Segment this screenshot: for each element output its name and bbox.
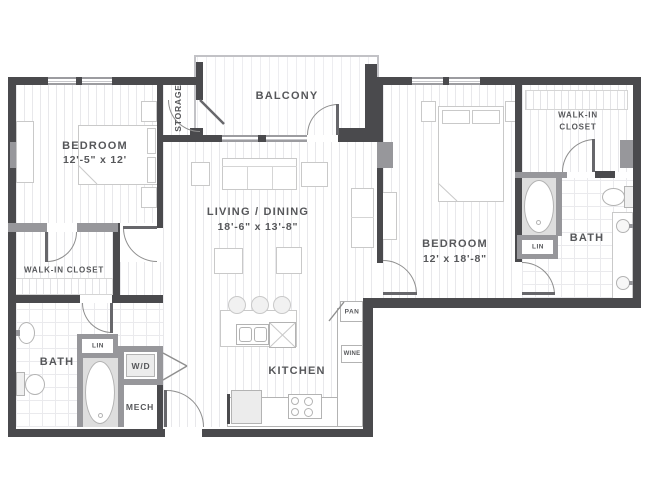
wall xyxy=(363,298,373,437)
dishwasher xyxy=(269,322,296,348)
wall xyxy=(363,298,641,308)
walkin-right-label-line1: WALK-IN xyxy=(558,111,598,120)
armchair xyxy=(276,247,302,274)
sink-basin xyxy=(254,327,267,342)
living-label: LIVING / DINING xyxy=(207,206,309,218)
bar-stool xyxy=(251,296,269,314)
side-chair xyxy=(191,162,210,186)
bedroom2-label: BEDROOM xyxy=(422,238,488,250)
closet-built-in xyxy=(620,140,633,168)
bedroom2-door-leaf xyxy=(383,292,417,295)
wall xyxy=(196,62,203,100)
pantry-label: PAN xyxy=(345,309,360,316)
sofa-back-line xyxy=(222,166,297,167)
bath-right-door-leaf xyxy=(522,292,555,295)
wall xyxy=(202,429,373,437)
bath-sink xyxy=(616,219,630,233)
balcony-label: BALCONY xyxy=(256,90,319,102)
partition-wall xyxy=(556,178,562,236)
sofa xyxy=(222,158,297,190)
sink-tap xyxy=(16,330,20,336)
wall xyxy=(113,223,120,303)
floor-plan: BEDROOM 12'-5" x 12' LIVING / DINING 18'… xyxy=(0,0,650,490)
console-divider xyxy=(351,217,374,218)
living-dims: 18'-6" x 13'-8" xyxy=(218,221,299,233)
mech-label: MECH xyxy=(126,402,154,412)
sink-basin xyxy=(239,327,252,342)
refrigerator xyxy=(231,390,262,424)
window-mullion xyxy=(258,135,266,142)
closet-shelf xyxy=(525,90,628,110)
sofa-cushion-line xyxy=(247,167,248,189)
bedroom1-label: BEDROOM xyxy=(62,140,128,152)
pillow xyxy=(472,110,500,124)
toilet-bowl xyxy=(602,188,625,206)
walkin-right-door-leaf xyxy=(592,139,595,172)
bedroom1-door-leaf xyxy=(123,226,157,229)
nightstand xyxy=(141,101,157,122)
burner xyxy=(291,408,299,416)
bar-stool xyxy=(273,296,291,314)
pillow xyxy=(442,110,470,124)
bedroom1-dims: 12'-5" x 12' xyxy=(63,154,127,166)
wall xyxy=(377,168,383,263)
nightstand xyxy=(421,101,436,122)
bedroom2-dims: 12' x 18'-8" xyxy=(423,253,487,265)
linen-left-label: LIN xyxy=(92,343,104,350)
wall xyxy=(633,77,641,308)
bath-sink xyxy=(616,276,630,290)
side-chair xyxy=(301,162,328,187)
pillow xyxy=(147,128,156,154)
sofa-cushion-line xyxy=(272,167,273,189)
linen-right-label: LIN xyxy=(532,244,544,251)
nightstand xyxy=(141,187,157,208)
wall xyxy=(8,295,80,303)
wall xyxy=(163,135,222,142)
wall xyxy=(374,77,412,85)
armchair xyxy=(214,248,243,274)
wall xyxy=(8,429,165,437)
walkin-left-label: WALK-IN CLOSET xyxy=(24,266,104,275)
washer-dryer-label: W/D xyxy=(132,361,151,371)
burner xyxy=(304,408,313,417)
tub-drain xyxy=(98,413,103,418)
toilet-tank xyxy=(16,372,25,396)
entry-door-leaf xyxy=(164,390,167,427)
partition-wall xyxy=(157,346,163,385)
wall xyxy=(8,77,16,437)
walkin-left-door-leaf xyxy=(45,232,48,262)
wall xyxy=(480,77,633,85)
wall xyxy=(595,171,615,178)
bath-left-label: BATH xyxy=(40,356,75,368)
closet-shelf xyxy=(14,278,113,295)
partition-wall xyxy=(118,346,124,427)
dresser xyxy=(381,192,397,240)
counter-end-wall xyxy=(227,394,230,424)
walkin-right-label-line2: CLOSET xyxy=(559,123,596,132)
partition-wall xyxy=(8,223,47,232)
wall xyxy=(374,85,383,142)
window-mullion xyxy=(443,77,449,85)
bedroom1-door-arc xyxy=(123,228,157,262)
bathtub xyxy=(524,180,554,233)
wall xyxy=(157,385,163,429)
bath-right-label: BATH xyxy=(570,232,605,244)
partition-wall xyxy=(77,223,118,232)
burner xyxy=(304,397,313,406)
bath-left-door-leaf xyxy=(110,303,113,333)
kitchen-label: KITCHEN xyxy=(268,365,325,377)
wall xyxy=(515,85,522,172)
hall-nook-floor xyxy=(120,262,163,295)
partition-wall xyxy=(77,358,83,427)
media-console xyxy=(351,188,374,248)
toilet-bowl xyxy=(25,374,45,395)
chase-block xyxy=(377,142,393,168)
window-mullion xyxy=(76,77,82,85)
storage-label: STORAGE xyxy=(173,84,183,131)
pillow xyxy=(147,157,156,183)
tub-drain xyxy=(536,220,541,225)
wall xyxy=(157,77,163,228)
dresser xyxy=(16,121,34,183)
burner xyxy=(291,397,299,405)
balcony-door-leaf xyxy=(336,104,339,135)
kitchen-counter-right xyxy=(337,308,363,427)
wine-label: WINE xyxy=(344,351,361,357)
bath-sink xyxy=(18,322,35,344)
bar-stool xyxy=(228,296,246,314)
wall-window-jamb xyxy=(10,142,16,168)
